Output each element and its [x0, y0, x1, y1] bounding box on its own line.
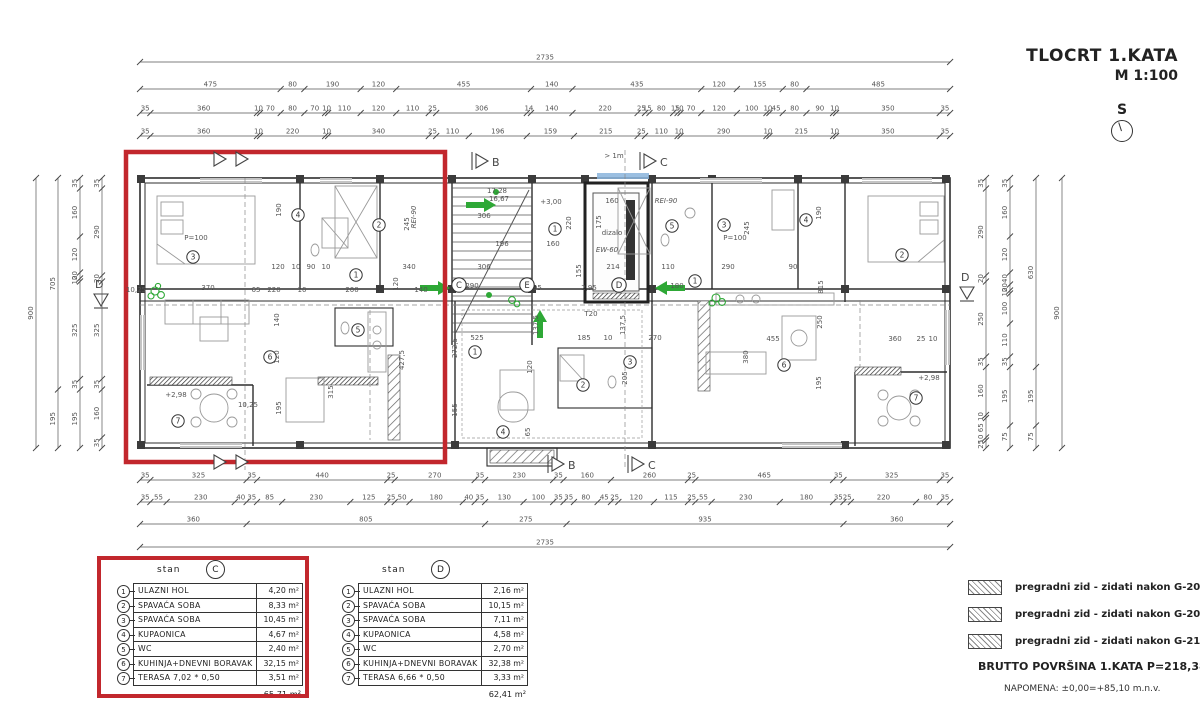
dimension-label: 20	[977, 274, 985, 283]
dimension-label: 250	[977, 312, 985, 325]
dimension-chain-top-2: 3536010708070101101201102530614140220251…	[137, 105, 953, 117]
dimension-chain-top-total: 2735	[137, 54, 953, 66]
legend-label: pregradni zid - zidati nakon G-202	[1015, 582, 1200, 593]
dimension-label: 10	[675, 128, 684, 136]
plan-label: 17,28	[487, 187, 507, 195]
dimension-label: 10	[830, 128, 839, 136]
outer-walls	[140, 178, 950, 448]
plan-label: REI-90	[655, 197, 678, 205]
plan-label: 65	[524, 428, 532, 437]
plan-label: 220	[267, 286, 280, 294]
row-number-badge: 4	[342, 629, 355, 642]
dimension-label: 20	[93, 274, 101, 283]
plan-label: 10	[298, 286, 307, 294]
plan-label: 2,95	[581, 284, 597, 292]
room-number: 5	[670, 222, 675, 231]
dimension-label: 475	[204, 81, 217, 89]
plan-label: P=100	[723, 234, 746, 242]
dimension-label: 10	[254, 105, 263, 113]
dimension-label: 35	[1001, 179, 1009, 188]
dimension-label: 80	[288, 81, 297, 89]
dimension-label: 10	[254, 128, 263, 136]
room-number: 1	[693, 277, 698, 286]
dimension-label: 80	[288, 105, 297, 113]
dimension-label: 25	[637, 128, 646, 136]
dimension-label: 195	[1027, 390, 1035, 403]
plan-label: REI-90	[410, 205, 418, 228]
room-name: KUHINJA+DNEVNI BORAVAK	[359, 657, 481, 671]
north-compass-icon	[1111, 120, 1133, 142]
dimension-label: 159	[544, 128, 557, 136]
plan-label: 180	[670, 282, 683, 290]
dimension-label: 35	[71, 179, 79, 188]
hatched-partition-walls	[150, 301, 901, 463]
dimension-label: 215	[599, 128, 612, 136]
plan-label: 290	[721, 263, 734, 271]
room-number: 2	[377, 221, 382, 230]
area-total: 62,41 m²	[358, 686, 529, 699]
plan-label: > 1m	[604, 152, 624, 160]
drawing-sheet: B C B C D D	[0, 0, 1200, 704]
hatch-swatch-icon	[968, 634, 1002, 649]
plan-label: 160	[546, 240, 559, 248]
furniture	[157, 186, 944, 427]
dimension-label: 110	[1001, 333, 1009, 346]
dimension-label: 100	[1001, 302, 1009, 315]
dimension-label: 455	[457, 81, 470, 89]
dimension-label: 705	[49, 277, 57, 290]
plan-label: EW-60	[596, 246, 619, 254]
dimension-label: 120	[629, 494, 642, 502]
dimension-label: 110	[406, 105, 419, 113]
dimension-label: 2735	[536, 54, 554, 62]
dimension-label: 25	[428, 105, 437, 113]
staircase	[452, 188, 532, 334]
dimension-label: 360	[197, 128, 210, 136]
wall-piers	[137, 175, 950, 449]
dimension-label: 65	[977, 423, 985, 432]
room-name: ULAZNI HOL	[359, 584, 481, 598]
plan-label: 155	[575, 264, 583, 277]
plan-label: 455	[766, 335, 779, 343]
dimension-label: 25	[610, 494, 619, 502]
room-name: TERASA 6,66 * 0,50	[359, 671, 481, 685]
dimension-label: 325	[192, 472, 205, 480]
drawing-title: TLOCRT 1.KATA	[1026, 46, 1178, 66]
room-number: 4	[501, 428, 506, 437]
dimension-label: 130	[498, 494, 511, 502]
dimension-chain-left-1: 705195	[49, 175, 61, 451]
room-number: 1	[354, 271, 359, 280]
dimension-label: 440	[315, 472, 328, 480]
dimension-label: 805	[359, 516, 372, 524]
plan-label: 90	[789, 263, 798, 271]
plan-label: 220	[565, 216, 573, 229]
room-name: WC	[359, 642, 481, 656]
dimension-label: 2735	[536, 539, 554, 547]
dimension-chain-bottom-total: 2735	[137, 539, 953, 551]
dimension-label: 306	[475, 105, 489, 113]
dimension-label: 10	[675, 105, 684, 113]
dimension-label: 220	[286, 128, 299, 136]
dimension-label: 230	[512, 472, 525, 480]
dimension-label: 55	[699, 494, 708, 502]
title-block: TLOCRT 1.KATA M 1:100	[1026, 46, 1178, 84]
plan-label: 195	[275, 401, 283, 414]
gross-area-note: BRUTTO POVRŠINA 1.KATA P=218,38 m²	[978, 660, 1200, 673]
plan-label: 10,25	[126, 286, 146, 294]
plan-label: 360	[888, 335, 901, 343]
table-row: 4KUPAONICA4,58 m²	[359, 628, 527, 643]
north-label: S	[1102, 102, 1142, 118]
room-number: 5	[356, 326, 361, 335]
dimension-label: 180	[800, 494, 813, 502]
dimension-label: 100	[745, 105, 758, 113]
dimension-label: 70	[266, 105, 275, 113]
plan-label: 525	[470, 334, 483, 342]
hatch-swatch-icon	[968, 607, 1002, 622]
plan-label: 10	[322, 263, 331, 271]
plan-label: 196	[495, 240, 509, 248]
room-area: 2,16 m²	[481, 584, 527, 598]
dimension-label: 340	[372, 128, 385, 136]
dimension-label: 180	[430, 494, 443, 502]
dimension-chain-left-2: 35160120201032535195	[71, 175, 83, 451]
blue-marker	[597, 173, 649, 179]
dimension-label: 360	[890, 516, 903, 524]
room-number: 1	[553, 225, 558, 234]
windows	[141, 179, 949, 447]
entry-arrows	[420, 189, 685, 338]
room-number: 1	[473, 348, 478, 357]
dimension-label: 35	[93, 380, 101, 389]
dimension-label: 935	[698, 516, 711, 524]
dimension-label: 25	[687, 494, 696, 502]
row-number-badge: 6	[342, 658, 355, 671]
dimension-label: 196	[491, 128, 505, 136]
unit-letter-badge: D	[431, 560, 450, 579]
dimension-label: 10	[763, 128, 772, 136]
plan-label: 205	[621, 371, 629, 384]
plan-label: 110	[661, 263, 674, 271]
dimension-label: 325	[71, 324, 79, 337]
plan-label: 185	[577, 334, 590, 342]
dimension-label: 90	[815, 105, 824, 113]
room-number: 3	[722, 221, 727, 230]
dimension-label: 45	[772, 105, 781, 113]
inner-dimension-labels: 19024512010901034010,2537065220102001201…	[126, 152, 940, 436]
row-number-badge: 2	[342, 600, 355, 613]
row-number-badge: 1	[342, 585, 355, 598]
dimension-label: 360	[187, 516, 200, 524]
plan-label: 90	[307, 263, 316, 271]
row-number-badge: 7	[342, 672, 355, 685]
room-number: 7	[176, 417, 181, 426]
dimension-label: 35	[475, 494, 484, 502]
dimension-label: 35	[93, 438, 101, 447]
dimension-label: 35	[1001, 357, 1009, 366]
dimension-label: 215	[795, 128, 808, 136]
plan-label: 195	[815, 376, 823, 389]
dimension-label: 35	[940, 105, 949, 113]
dimension-label: 230	[310, 494, 323, 502]
room-number: 2	[581, 381, 586, 390]
dimension-label: 40	[1001, 274, 1009, 283]
dimension-label: 350	[881, 128, 894, 136]
dimension-label: 25	[977, 440, 985, 449]
legend: pregradni zid - zidati nakon G-202 pregr…	[968, 580, 1200, 661]
dimension-label: 25	[843, 494, 852, 502]
section-markers: B C B C D D	[94, 152, 974, 473]
dimension-label: 900	[1053, 306, 1061, 319]
dimension-label: 360	[197, 105, 210, 113]
dimension-label: 70	[310, 105, 319, 113]
room-area: 2,70 m²	[481, 642, 527, 656]
room-area: 32,38 m²	[481, 657, 527, 671]
legend-item: pregradni zid - zidati nakon G-210	[968, 634, 1200, 649]
dimension-label: 80	[581, 494, 590, 502]
dimension-label: 35	[977, 179, 985, 188]
dimension-label: 140	[545, 105, 558, 113]
plan-label: 370	[201, 284, 214, 292]
dimension-label: 160	[581, 472, 594, 480]
plan-label: 137,5	[532, 315, 540, 335]
table-row: 6KUHINJA+DNEVNI BORAVAK32,38 m²	[359, 657, 527, 672]
dimension-label: 120	[372, 81, 385, 89]
dimension-label: 25	[687, 472, 696, 480]
room-area: 10,15 m²	[481, 599, 527, 613]
dimension-chain-right-2: 351601204020101001103519575	[1001, 175, 1013, 451]
drawing-scale: M 1:100	[1026, 68, 1178, 84]
room-number: 4	[296, 211, 301, 220]
plan-label: 120	[392, 277, 400, 290]
entrance-letter: E	[524, 281, 529, 291]
dimension-label: 80	[657, 105, 666, 113]
dimension-label: 35	[554, 472, 563, 480]
dimension-label: 190	[326, 81, 339, 89]
dimension-label: 350	[881, 105, 894, 113]
dimension-label: 160	[71, 206, 79, 219]
dimension-label: 15	[643, 105, 652, 113]
dimension-label: 120	[372, 105, 385, 113]
dimension-label: 35	[141, 472, 150, 480]
dimension-chain-right-3: 63019575	[1027, 175, 1039, 451]
entrance-letter: D	[616, 281, 623, 291]
dimension-label: 485	[872, 81, 885, 89]
dimension-label: 230	[739, 494, 752, 502]
plan-label: 160	[605, 197, 618, 205]
plan-label: +3,00	[540, 198, 561, 206]
dimension-chain-right-1: 35290202503516010651025	[977, 175, 989, 451]
plan-label: 120	[271, 263, 284, 271]
svg-text:B: B	[568, 459, 576, 472]
room-number: 3	[628, 358, 633, 367]
room-number: 7	[914, 394, 919, 403]
plan-label: 245	[743, 221, 751, 234]
dimension-label: 110	[446, 128, 459, 136]
plan-label: 25	[917, 335, 926, 343]
dimension-label: 75	[1001, 432, 1009, 441]
room-number: 4	[804, 216, 809, 225]
dimension-label: 35	[141, 494, 150, 502]
dimension-label: 35	[940, 494, 949, 502]
dimension-label: 45	[600, 494, 609, 502]
dimension-label: 80	[923, 494, 932, 502]
plan-label: 155	[451, 403, 459, 416]
plan-label: 140	[414, 286, 427, 294]
dimension-label: 50	[398, 494, 407, 502]
dimension-label: 275	[519, 516, 532, 524]
plan-label: 16,67	[489, 195, 509, 203]
plan-label: 290	[465, 282, 478, 290]
dimension-label: 630	[1027, 266, 1035, 279]
dimension-label: 100	[532, 494, 545, 502]
dimension-label: 10	[322, 105, 331, 113]
plan-label: 815	[817, 280, 825, 293]
svg-text:D: D	[961, 271, 969, 284]
dimension-label: 110	[655, 128, 668, 136]
dimension-label: 160	[1001, 206, 1009, 219]
dimension-chain-left-total: 900	[27, 175, 39, 451]
dimension-label: 110	[338, 105, 351, 113]
dimension-chain-top-1: 4758019012045514043512015580485	[137, 81, 953, 93]
dimension-label: 35	[940, 128, 949, 136]
dimension-label: 140	[545, 81, 558, 89]
room-number: 3	[191, 253, 196, 262]
highlight-table-c	[97, 556, 309, 698]
dimension-label: 35	[564, 494, 573, 502]
plan-label: 306	[477, 212, 491, 220]
plan-label: 250	[816, 315, 824, 328]
plan-label: 200	[345, 286, 358, 294]
dimension-label: 35	[834, 472, 843, 480]
room-area: 3,33 m²	[481, 671, 527, 685]
room-number: 6	[268, 353, 273, 362]
plan-label: 270	[648, 334, 661, 342]
north-indicator: S	[1102, 102, 1142, 142]
plan-label: 175	[595, 215, 603, 228]
dimension-label: 155	[753, 81, 766, 89]
dimension-label: 195	[49, 412, 57, 425]
dimension-label: 35	[475, 472, 484, 480]
dimension-label: 10	[830, 105, 839, 113]
dimension-label: 35	[141, 128, 150, 136]
dimension-chain-bottom-2: 3555230403585230125255018040351301003535…	[137, 494, 953, 506]
dimension-label: 40	[464, 494, 473, 502]
table-row: 7TERASA 6,66 * 0,503,33 m²	[359, 671, 527, 685]
plan-label: 65	[252, 286, 261, 294]
dimension-label: 25	[428, 128, 437, 136]
dimension-label: 160	[977, 384, 985, 397]
dimension-label: 900	[27, 306, 35, 319]
legend-label: pregradni zid - zidati nakon G-209	[1015, 609, 1200, 620]
room-area: 7,11 m²	[481, 613, 527, 627]
dimension-label: 10	[322, 128, 331, 136]
plan-label: 315	[327, 385, 335, 398]
dimension-label: 80	[790, 105, 799, 113]
plan-label: 140	[273, 313, 281, 326]
dimension-label: 115	[664, 494, 677, 502]
dimension-label: 465	[758, 472, 771, 480]
plan-label: dizalo	[602, 229, 623, 237]
dimension-label: 120	[712, 81, 725, 89]
plan-label: 190	[275, 203, 283, 216]
dimension-label: 120	[712, 105, 725, 113]
room-number: 6	[782, 361, 787, 370]
plan-label: 10	[929, 335, 938, 343]
svg-text:C: C	[660, 156, 668, 169]
dimension-chain-left-3: 35290203253516035	[93, 175, 105, 451]
dimension-label: 55	[154, 494, 163, 502]
table-row: 5WC2,70 m²	[359, 642, 527, 657]
plan-label: 137,5	[619, 315, 627, 335]
room-name: SPAVAĆA SOBA	[359, 613, 481, 627]
dimension-label: 230	[194, 494, 207, 502]
dimension-label: 35	[71, 380, 79, 389]
dimension-label: 160	[93, 407, 101, 420]
dimension-label: 70	[686, 105, 695, 113]
dimension-chain-right-total: 900	[1053, 175, 1065, 451]
dimension-label: 290	[717, 128, 730, 136]
room-area: 4,58 m²	[481, 628, 527, 642]
legend-label: pregradni zid - zidati nakon G-210	[1015, 636, 1200, 647]
dimension-label: 75	[1027, 432, 1035, 441]
dimension-label: 35	[141, 105, 150, 113]
dimension-label: 120	[1001, 248, 1009, 261]
room-name: SPAVAĆA SOBA	[359, 599, 481, 613]
dimension-label: 40	[236, 494, 245, 502]
dimension-label: 10	[977, 412, 985, 421]
dimension-label: 125	[362, 494, 375, 502]
table-row: 2SPAVAĆA SOBA10,15 m²	[359, 599, 527, 614]
plan-label: 10	[604, 334, 613, 342]
dimension-label: 25	[387, 494, 396, 502]
dimension-label: 270	[428, 472, 441, 480]
dimension-label: 435	[630, 81, 643, 89]
dimension-label: 195	[71, 412, 79, 425]
dimension-chain-top-3: 3536010220103402511019615921525110102901…	[137, 128, 953, 140]
dimension-label: 10	[71, 276, 79, 285]
dimension-label: 35	[247, 472, 256, 480]
plan-label: 340	[402, 263, 415, 271]
dimension-label: 325	[93, 324, 101, 337]
dimension-chain-bottom-1: 3532535440252703523035160260254653532535	[137, 472, 953, 484]
floor-plan: B C B C D D	[0, 0, 1200, 560]
svg-text:C: C	[648, 459, 656, 472]
dimension-label: 290	[977, 225, 985, 238]
plan-label: 120	[526, 360, 534, 373]
elevation-note: NAPOMENA: ±0,00=+85,10 m.n.v.	[1004, 684, 1160, 694]
room-number: 2	[900, 251, 905, 260]
plan-label: +2,98	[165, 391, 186, 399]
row-number-badge: 5	[342, 643, 355, 656]
legend-item: pregradni zid - zidati nakon G-202	[968, 580, 1200, 595]
dimension-label: 290	[93, 225, 101, 238]
dimension-label: 220	[877, 494, 890, 502]
plan-label: 10	[292, 263, 301, 271]
dimension-label: 260	[643, 472, 656, 480]
plan-label: T20	[583, 310, 597, 318]
plan-label: 380	[742, 350, 750, 363]
dimension-label: 14	[524, 105, 533, 113]
dimension-label: 35	[93, 179, 101, 188]
plan-label: 306	[477, 263, 491, 271]
plan-label: 190	[815, 206, 823, 219]
hatch-swatch-icon	[968, 580, 1002, 595]
plan-label: 427,5	[398, 350, 406, 370]
dimension-label: 220	[598, 105, 611, 113]
dimension-label: 35	[977, 357, 985, 366]
